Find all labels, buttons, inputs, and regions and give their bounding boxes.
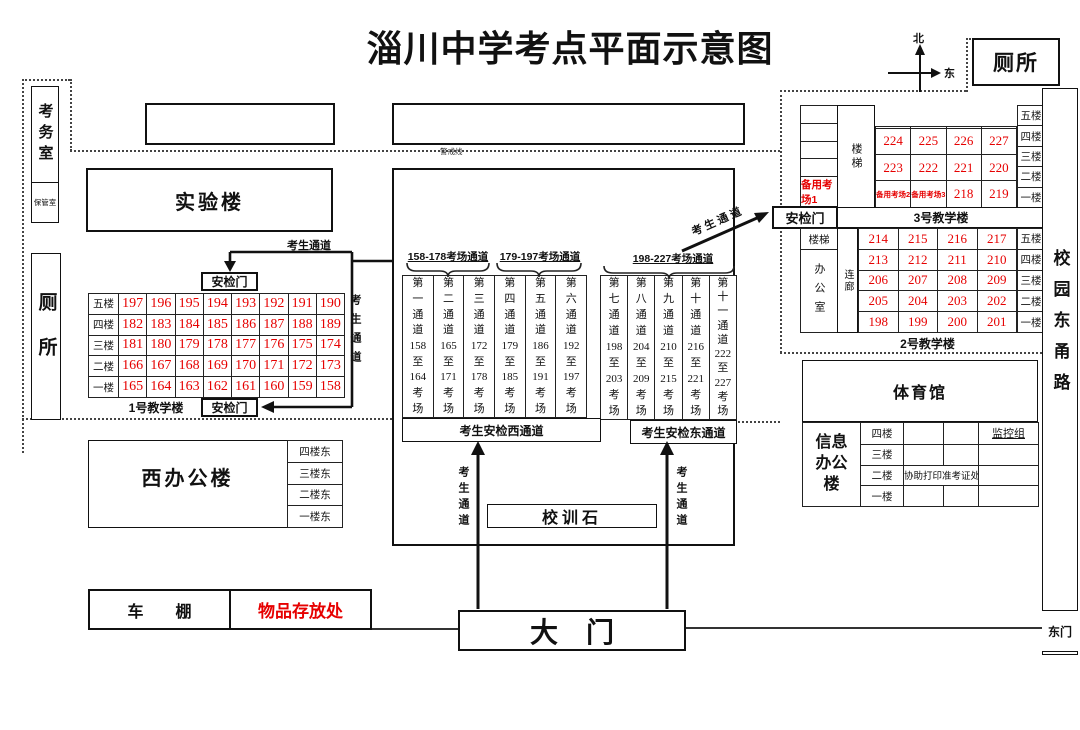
corridor-char: 192 [556,339,586,355]
arrow-up-right-icon [754,212,769,223]
floor-label: 三楼东 [288,463,342,485]
exam-room-cell: 214 [859,229,899,250]
corridor-char: 考 [434,386,464,402]
corridor-column: 第六通道192至197考场 [556,276,586,417]
exam-room-cell: 169 [203,356,231,377]
corridor-char: 第 [526,276,556,292]
east-connector-line [686,627,1042,629]
corridor-char: 164 [403,370,433,386]
corridor-char: 考 [710,390,736,404]
bike-storage-block: 车 棚 物品存放处 [88,589,372,630]
corridor-char: 通 [495,307,525,323]
compass-east-label: 东 [944,65,955,81]
corridor-char: 至 [434,354,464,370]
gym: 体育馆 [802,360,1038,422]
corridor-char: 221 [683,371,709,387]
corridor-char: 考 [495,386,525,402]
exam-room-cell: 205 [859,291,899,312]
exam-room-cell: 191 [288,294,316,315]
corridor-char: 第 [683,276,709,292]
corridors-west: 第一通道158至164考场第二通道165至171考场第三通道172至178考场第… [402,275,587,418]
corridor-char: 通 [655,308,681,324]
corridor-char: 通 [464,307,494,323]
corridor-char: 一 [403,292,433,308]
corridor-char: 场 [526,401,556,417]
exam-room-cell: 166 [119,356,147,377]
b3-left-col: 备用考场1 [800,105,838,208]
corridor-char: 203 [601,371,627,387]
corridor-char: 至 [710,362,736,376]
corridor-char: 道 [655,324,681,340]
corridor-char: 一 [710,305,736,319]
exam-room-cell: 168 [175,356,203,377]
bike-shed: 车 棚 [90,591,229,628]
exam-room-cell: 167 [147,356,175,377]
exam-room-cell: 184 [175,314,203,335]
exam-room-cell: 179 [175,335,203,356]
corridor-char: 至 [655,355,681,371]
corridor-char: 考 [683,387,709,403]
exam-room-cell: 195 [175,294,203,315]
motto-stone: 校训石 [487,504,657,528]
corridor-char: 186 [526,339,556,355]
toilet-left: 厕所 [31,253,61,420]
exam-room-cell: 161 [232,377,260,398]
corridor-header-east: 198-227考场通道 [612,251,734,266]
corridor-column: 第二通道165至171考场 [434,276,465,417]
b3-stairs: 楼梯 [837,105,875,208]
corridor-char: 场 [434,401,464,417]
spare-room-cell: 备用考场1 [801,177,837,207]
corridor-char: 十 [683,292,709,308]
corridor-char: 通 [683,308,709,324]
corridor-char: 道 [403,323,433,339]
corridor-char: 九 [655,292,681,308]
exam-room-cell: 210 [977,249,1017,270]
corridor-char: 场 [683,403,709,419]
exam-room-cell: 220 [981,155,1016,181]
empty-cell [979,444,1039,465]
exam-room-cell: 160 [260,377,288,398]
corridor-char: 158 [403,339,433,355]
exam-room-cell: 188 [288,314,316,335]
east-road-label: 校园东甬路 [1048,249,1073,404]
exam-room-cell: 193 [232,294,260,315]
corridor-char: 十 [710,290,736,304]
b2-grid: 2142152162172132122112102062072082092052… [858,228,1017,333]
floor-label: 二楼 [1018,167,1044,187]
spare-room-cell [801,142,837,160]
corridor-char: 考 [403,386,433,402]
corridor-char: 考 [628,387,654,403]
building-block [145,103,335,145]
corridor-char: 第 [403,276,433,292]
exam-room-cell: 180 [147,335,175,356]
floor-label: 二楼 [861,465,904,486]
exam-room-cell: 192 [260,294,288,315]
exam-office-label: 考务室 [35,103,56,166]
building1-table: 五楼197196195194193192191190四楼182183184185… [88,293,345,398]
exam-room-cell: 208 [938,270,978,291]
corridor-column: 第三通道172至178考场 [464,276,495,417]
exam-room-cell: 226 [946,128,981,154]
exam-room-cell: 216 [938,229,978,250]
floor-label: 三楼 [1018,271,1044,292]
print-office-cell: 协助打印准考证处 [904,465,979,486]
cordon-line [780,352,1046,354]
exam-room-cell: 174 [316,335,344,356]
floor-label: 一楼东 [288,506,342,527]
corridor-char: 第 [655,276,681,292]
east-gate: 东门 [1042,610,1078,652]
building1-path-label: 考生通道 [287,237,331,253]
page-title: 淄川中学考点平面示意图 [340,20,800,72]
corridor-char: 通 [526,307,556,323]
corridor-char: 227 [710,376,736,390]
toilet-top: 厕所 [972,38,1060,86]
exam-room-cell: 164 [147,377,175,398]
keep-room-label: 保管室 [32,183,58,221]
corridor-char: 场 [556,401,586,417]
corridor-column: 第十一通道222至227考场 [710,276,736,419]
exam-room-cell: 198 [859,312,899,333]
corridor-char: 考 [601,387,627,403]
exam-room-cell: 200 [938,312,978,333]
corridor-char: 204 [628,340,654,356]
building1-gate-top: 安检门 [201,272,258,291]
b2-stairs-label: 楼梯 [801,229,837,250]
corridor-char: 道 [526,323,556,339]
info-building-name: 信息 办公 楼 [803,423,861,507]
floor-label: 四楼 [861,423,904,445]
floor-label: 三楼 [1018,147,1044,167]
corridor-char: 通 [628,308,654,324]
corridor-char: 道 [495,323,525,339]
exam-room-cell: 186 [232,314,260,335]
corridor-column: 第五通道186至191考场 [526,276,557,417]
corridor-char: 第 [556,276,586,292]
corridor-char: 185 [495,370,525,386]
compass-east-arrow-icon [931,68,941,78]
empty-cell [904,444,944,465]
corridor-char: 四 [495,292,525,308]
exam-room-cell: 185 [203,314,231,335]
corridor-char: 考 [556,386,586,402]
floor-label: 五楼 [1018,106,1044,126]
corridor-char: 165 [434,339,464,355]
cordon-label: 警戒线 [440,146,463,157]
floor-label: 二楼东 [288,485,342,507]
spare-room-cell [801,124,837,142]
b2-link: 连廊 [837,228,858,333]
exam-room-cell: 181 [119,335,147,356]
corridor-char: 197 [556,370,586,386]
floor-label: 一楼 [861,486,904,507]
exam-room-cell: 159 [288,377,316,398]
corridor-char: 179 [495,339,525,355]
floor-label: 三楼 [89,335,119,356]
main-gate: 大 门 [458,610,686,651]
corridor-char: 至 [495,354,525,370]
exam-room-cell: 206 [859,270,899,291]
cordon-line [22,79,70,81]
compass-north-label: 北 [913,30,924,46]
exam-room-cell: 197 [119,294,147,315]
corridor-char: 八 [628,292,654,308]
floor-label: 四楼 [1018,126,1044,146]
corridor-char: 第 [434,276,464,292]
empty-cell [944,486,979,507]
corridor-char: 二 [434,292,464,308]
cordon-line [780,90,966,92]
cordon-line [70,150,780,152]
monitor-group-cell: 监控组 [979,423,1039,445]
cordon-line [22,418,392,420]
east-road: 校园东甬路 [1042,88,1078,655]
corridor-char: 道 [434,323,464,339]
corridor-char: 通 [434,307,464,323]
exam-room-cell: 218 [946,181,981,208]
corridor-char: 道 [710,333,736,347]
west-security-strip: 考生安检西通道 [402,418,601,442]
exam-room-cell: 163 [175,377,203,398]
b2-office-label: 办公室 [811,263,827,320]
exam-office: 考务室 保管室 [31,86,59,223]
corridor-char: 216 [683,340,709,356]
b2-left-col: 楼梯 办公室 [800,228,838,333]
corridor-char: 六 [556,292,586,308]
campus-map: 淄川中学考点平面示意图 警戒线 考务室 保管室 厕所 实验楼 158-178考场… [0,0,1080,730]
b2-link-label: 连廊 [840,269,855,293]
corridor-char: 道 [556,323,586,339]
corridor-char: 场 [601,403,627,419]
corridor-char: 第 [495,276,525,292]
corridor-char: 第 [601,276,627,292]
exam-room-cell: 223 [876,155,911,181]
exam-room-cell: 196 [147,294,175,315]
exam-room-cell: 224 [876,128,911,154]
exam-room-cell: 213 [859,249,899,270]
corridor-char: 至 [601,355,627,371]
walkway-label-east: 考生通道 [673,466,689,530]
spare-room-cell [801,106,837,124]
spare-room-cell [801,159,837,177]
floor-label: 二楼 [89,356,119,377]
floor-label: 一楼 [89,377,119,398]
lab-building: 实验楼 [86,168,333,232]
compass-icon [888,52,933,92]
exam-room-cell: 178 [203,335,231,356]
floor-label: 一楼 [1018,312,1044,332]
corridor-column: 第四通道179至185考场 [495,276,526,417]
exam-room-cell: 215 [898,229,938,250]
empty-cell [944,444,979,465]
corridor-char: 222 [710,347,736,361]
corridor-column: 第七通道198至203考场 [601,276,628,419]
exam-room-cell: 189 [316,314,344,335]
corridor-column: 第九通道210至215考场 [655,276,682,419]
floor-label: 一楼 [1018,188,1044,207]
corridor-char: 至 [464,354,494,370]
corridor-char: 209 [628,371,654,387]
floor-label: 五楼 [1018,229,1044,250]
exam-room-cell: 202 [977,291,1017,312]
b3-name: 3号教学楼 [837,207,1045,228]
corridor-char: 171 [434,370,464,386]
toilet-left-label: 厕所 [33,292,60,382]
cordon-line [70,79,72,151]
exam-room-cell: 194 [203,294,231,315]
corridor-char: 场 [628,403,654,419]
corridor-char: 至 [556,354,586,370]
corridor-char: 215 [655,371,681,387]
exam-room-cell: 203 [938,291,978,312]
corridor-char: 通 [556,307,586,323]
exam-room-cell: 207 [898,270,938,291]
corridor-char: 第 [464,276,494,292]
corridor-char: 至 [526,354,556,370]
exam-room-cell: 158 [316,377,344,398]
exam-room-cell: 199 [898,312,938,333]
exam-room-cell: 170 [232,356,260,377]
exam-room-cell: 201 [977,312,1017,333]
building1-side-walkway-label: 考生通道 [347,294,363,370]
corridor-char: 至 [683,355,709,371]
corridor-char: 场 [655,403,681,419]
empty-cell [904,486,944,507]
storage-area: 物品存放处 [229,591,370,628]
b3-grid: 224225226227223222221220备用考场2备用考场3218219 [875,126,1017,208]
floor-label: 四楼 [1018,250,1044,271]
corridor-char: 场 [464,401,494,417]
empty-cell [904,423,944,445]
corridor-char: 场 [710,405,736,419]
b2-name: 2号教学楼 [820,335,1035,352]
cordon-line [22,79,24,453]
exam-room-cell: 备用考场3 [911,181,946,208]
exam-room-cell: 211 [938,249,978,270]
corridor-header-west2: 179-197考场通道 [494,249,586,264]
corridor-char: 至 [628,355,654,371]
exam-room-cell: 219 [981,181,1016,208]
exam-room-cell: 187 [260,314,288,335]
exam-room-cell: 172 [288,356,316,377]
corridor-char: 考 [526,386,556,402]
corridor-char: 通 [601,308,627,324]
building-block [392,103,745,145]
corridor-char: 七 [601,292,627,308]
east-security-strip: 考生安检东通道 [630,420,737,444]
exam-room-cell: 217 [977,229,1017,250]
exam-room-cell: 212 [898,249,938,270]
corridor-header-west1: 158-178考场通道 [402,249,494,264]
corridor-char: 210 [655,340,681,356]
corridor-char: 通 [710,319,736,333]
corridor-char: 178 [464,370,494,386]
corridor-char: 道 [464,323,494,339]
exam-room-cell: 227 [981,128,1016,154]
exam-room-cell: 175 [288,335,316,356]
gate-connector-line [372,628,458,630]
info-table: 信息 办公 楼四楼监控组三楼二楼协助打印准考证处一楼 [802,422,1039,507]
b3-gate: 安检门 [772,206,838,229]
exam-room-cell: 225 [911,128,946,154]
corridor-char: 191 [526,370,556,386]
floor-label: 四楼 [89,314,119,335]
corridor-char: 五 [526,292,556,308]
corridor-char: 场 [403,401,433,417]
building1-name: 1号教学楼 [96,399,216,416]
floor-label: 二楼 [1018,291,1044,312]
corridor-char: 第 [628,276,654,292]
arrow-down-icon [224,261,236,272]
exam-room-cell: 备用考场2 [876,181,911,208]
exam-room-cell: 221 [946,155,981,181]
b2-floors: 五楼四楼三楼二楼一楼 [1017,228,1045,333]
walkway-label-west: 考生通道 [455,466,471,530]
exam-room-cell: 209 [977,270,1017,291]
arrow-left-icon [261,401,274,413]
corridors-east: 第七通道198至203考场第八通道204至209考场第九通道210至215考场第… [600,275,737,420]
exam-room-cell: 190 [316,294,344,315]
corridor-char: 考 [464,386,494,402]
corridor-char: 三 [464,292,494,308]
exam-room-cell: 171 [260,356,288,377]
corridor-column: 第一通道158至164考场 [403,276,434,417]
corridor-char: 场 [495,401,525,417]
exam-room-cell: 204 [898,291,938,312]
corridor-column: 第十通道216至221考场 [683,276,710,419]
corridor-char: 172 [464,339,494,355]
corridor-char: 道 [628,324,654,340]
corridor-column: 第八通道204至209考场 [628,276,655,419]
corridor-char: 通 [403,307,433,323]
corridor-char: 第 [710,276,736,290]
corridor-char: 道 [601,324,627,340]
exam-room-cell: 182 [119,314,147,335]
corridor-char: 198 [601,340,627,356]
exam-room-cell: 183 [147,314,175,335]
west-office-name: 西办公楼 [88,462,287,491]
floor-label: 四楼东 [288,441,342,463]
corridor-char: 至 [403,354,433,370]
exam-room-cell: 177 [232,335,260,356]
cordon-line [966,38,968,92]
exam-room-cell: 173 [316,356,344,377]
empty-cell [979,465,1039,486]
corridor-char: 考 [655,387,681,403]
b2-office: 办公室 [801,250,837,332]
exam-room-cell: 176 [260,335,288,356]
corridor-char: 道 [683,324,709,340]
west-office-floors: 四楼东三楼东二楼东一楼东 [287,440,343,528]
exam-room-cell: 222 [911,155,946,181]
exam-room-cell: 165 [119,377,147,398]
floor-label: 五楼 [89,294,119,315]
b3-stairs-label: 楼梯 [848,143,864,171]
empty-cell [944,423,979,445]
exam-room-cell: 162 [203,377,231,398]
floor-label: 三楼 [861,444,904,465]
b3-floors: 五楼四楼三楼二楼一楼 [1017,105,1045,208]
empty-cell [979,486,1039,507]
